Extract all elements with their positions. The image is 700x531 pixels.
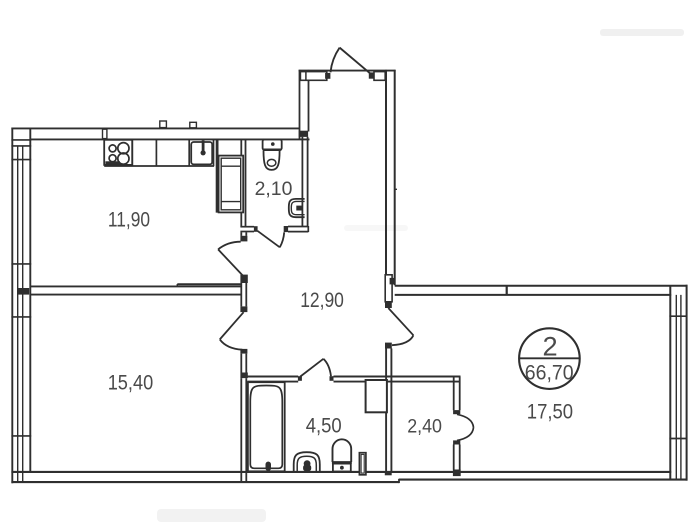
svg-text:2: 2 (543, 330, 558, 361)
svg-text:11,90: 11,90 (108, 207, 150, 231)
svg-text:17,50: 17,50 (527, 400, 573, 424)
svg-text:4,50: 4,50 (306, 413, 342, 437)
svg-text:15,40: 15,40 (108, 370, 154, 394)
svg-text:2,40: 2,40 (407, 416, 442, 437)
svg-text:12,90: 12,90 (300, 288, 344, 312)
svg-text:2,10: 2,10 (255, 179, 293, 200)
svg-text:66,70: 66,70 (525, 360, 574, 384)
